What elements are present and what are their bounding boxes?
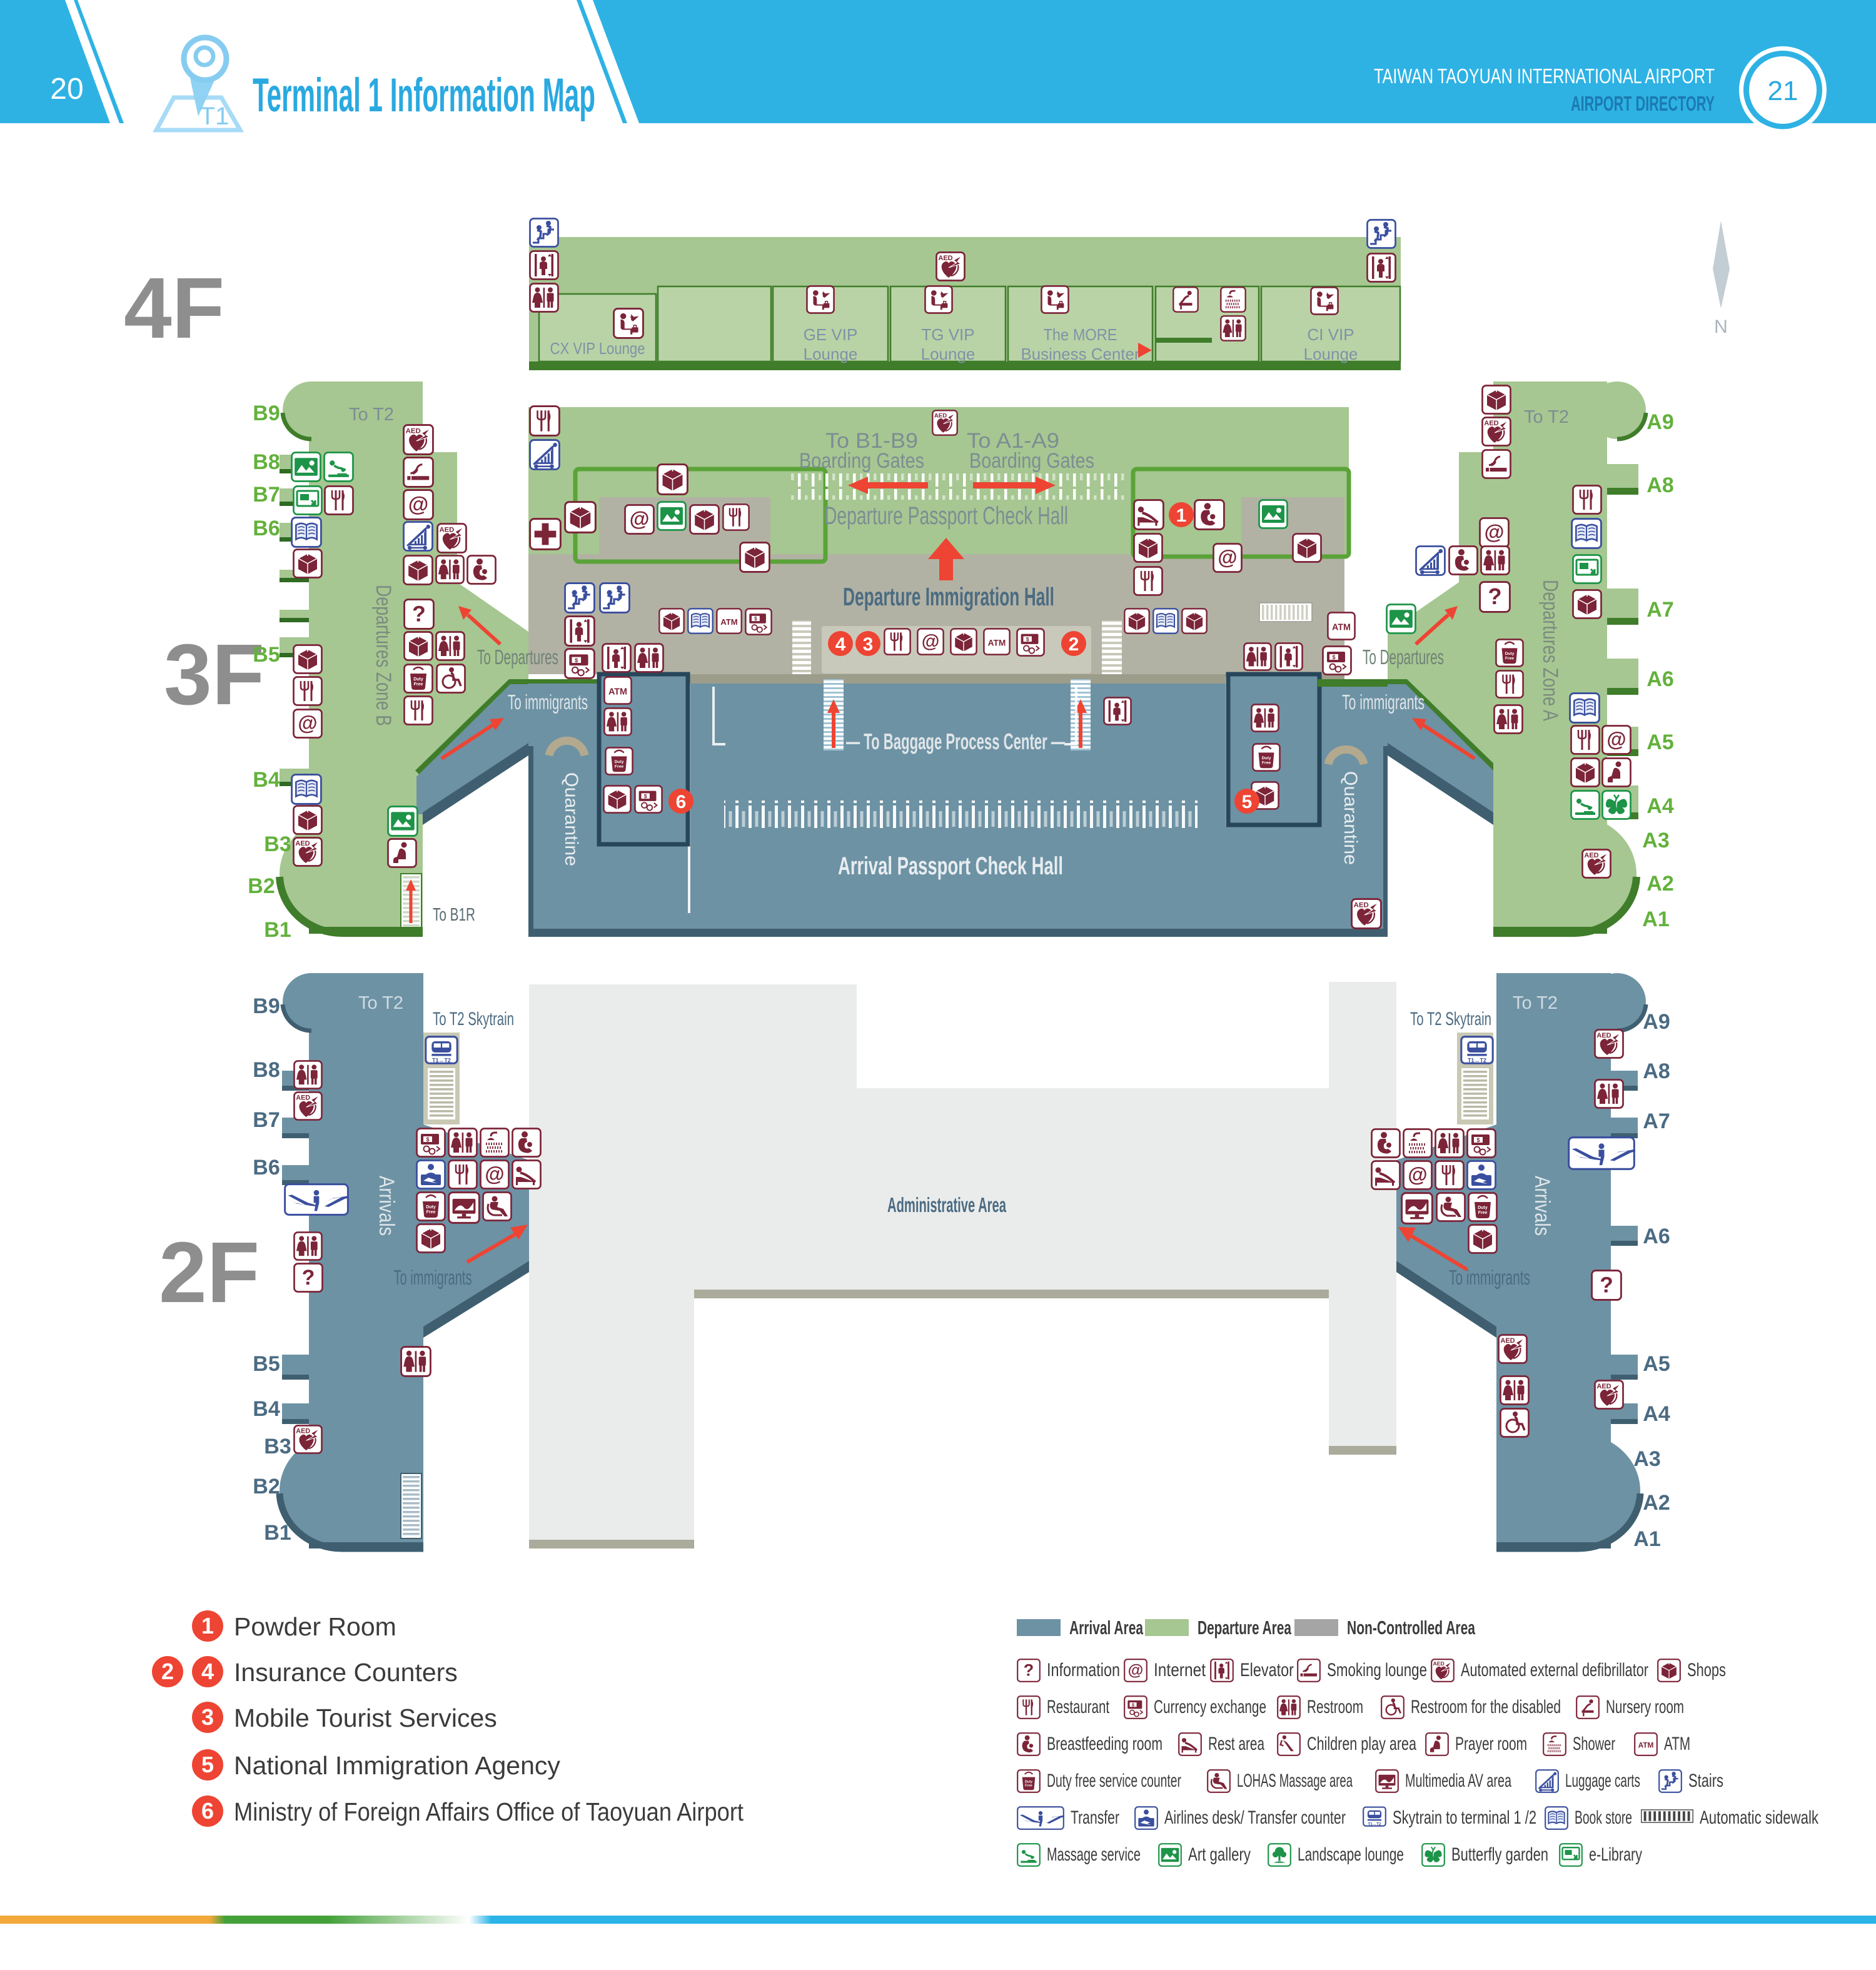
svg-text:Duty free service counter: Duty free service counter — [1047, 1770, 1181, 1791]
svg-text:6: 6 — [676, 792, 687, 812]
svg-text:3: 3 — [201, 1704, 214, 1730]
svg-text:Arrival Area: Arrival Area — [1069, 1617, 1144, 1639]
svg-text:To Departures: To Departures — [1363, 645, 1444, 669]
svg-text:Boarding Gates: Boarding Gates — [969, 449, 1094, 473]
svg-text:Children play area: Children play area — [1307, 1734, 1416, 1754]
svg-text:A1: A1 — [1642, 907, 1669, 931]
svg-text:Departure Immigration Hall: Departure Immigration Hall — [843, 582, 1054, 611]
svg-text:Elevator: Elevator — [1240, 1660, 1294, 1680]
svg-text:National Immigration Agency: National Immigration Agency — [234, 1751, 560, 1780]
svg-text:B6: B6 — [253, 1156, 280, 1179]
svg-text:20: 20 — [50, 73, 83, 106]
svg-text:B1: B1 — [264, 918, 291, 942]
svg-text:Departures Zone A: Departures Zone A — [1538, 580, 1562, 721]
svg-text:To Departures: To Departures — [477, 645, 558, 669]
svg-text:B3: B3 — [264, 1435, 291, 1458]
svg-text:N: N — [1714, 316, 1728, 337]
svg-text:Quarantine: Quarantine — [561, 772, 582, 866]
svg-text:Boarding Gates: Boarding Gates — [799, 449, 924, 473]
svg-text:A7: A7 — [1643, 1109, 1670, 1133]
svg-text:Restroom for the disabled: Restroom for the disabled — [1411, 1697, 1561, 1717]
svg-text:Powder Room: Powder Room — [234, 1612, 396, 1641]
svg-text:The MORE: The MORE — [1044, 325, 1117, 344]
svg-text:B5: B5 — [253, 643, 280, 667]
svg-text:A3: A3 — [1633, 1447, 1660, 1471]
svg-text:To T2 Skytrain: To T2 Skytrain — [433, 1009, 514, 1029]
svg-text:Prayer room: Prayer room — [1455, 1734, 1527, 1754]
svg-text:1: 1 — [1176, 505, 1187, 526]
svg-text:Book store: Book store — [1575, 1807, 1632, 1828]
svg-text:B9: B9 — [253, 994, 280, 1018]
svg-text:2: 2 — [161, 1659, 174, 1684]
svg-text:A5: A5 — [1647, 730, 1673, 754]
svg-text:Automatic sidewalk: Automatic sidewalk — [1700, 1807, 1819, 1828]
svg-text:A4: A4 — [1647, 794, 1674, 818]
svg-text:2: 2 — [1069, 634, 1079, 655]
svg-text:Skytrain to terminal 1 /2: Skytrain to terminal 1 /2 — [1393, 1807, 1536, 1828]
svg-text:T1: T1 — [200, 103, 229, 130]
svg-text:Information: Information — [1047, 1660, 1120, 1680]
svg-text:Luggage carts: Luggage carts — [1565, 1770, 1640, 1791]
svg-text:To T2: To T2 — [1513, 993, 1558, 1013]
svg-text:Art gallery: Art gallery — [1188, 1844, 1251, 1865]
svg-text:Massage service: Massage service — [1047, 1844, 1141, 1865]
svg-text:Transfer: Transfer — [1071, 1807, 1119, 1828]
svg-text:Shower: Shower — [1573, 1734, 1615, 1754]
svg-text:A8: A8 — [1643, 1059, 1670, 1083]
svg-text:Nursery room: Nursery room — [1606, 1697, 1684, 1717]
svg-text:Mobile Tourist Services: Mobile Tourist Services — [234, 1704, 497, 1732]
svg-text:A5: A5 — [1643, 1352, 1670, 1376]
svg-text:Terminal 1 Information Map: Terminal 1 Information Map — [253, 69, 595, 122]
svg-text:Stairs: Stairs — [1688, 1770, 1723, 1791]
svg-text:Ministry of Foreign Affairs Of: Ministry of Foreign Affairs Office of Ta… — [234, 1797, 744, 1826]
svg-text:LOHAS Massage area: LOHAS Massage area — [1237, 1770, 1353, 1791]
svg-text:Breastfeeding room: Breastfeeding room — [1047, 1734, 1162, 1754]
svg-text:Smoking lounge: Smoking lounge — [1327, 1660, 1427, 1680]
svg-text:TAIWAN TAOYUAN INTERNATIONAL A: TAIWAN TAOYUAN INTERNATIONAL AIRPORT — [1374, 64, 1715, 88]
svg-text:A4: A4 — [1643, 1402, 1670, 1426]
svg-text:B3: B3 — [264, 832, 291, 856]
svg-text:2F: 2F — [159, 1225, 260, 1321]
svg-text:B2: B2 — [248, 874, 275, 898]
svg-text:B1: B1 — [264, 1521, 291, 1545]
svg-text:Quarantine: Quarantine — [1340, 771, 1361, 865]
svg-text:To immigrants: To immigrants — [1449, 1266, 1530, 1289]
svg-text:3F: 3F — [164, 627, 265, 723]
svg-text:To T2: To T2 — [349, 405, 394, 425]
svg-text:B8: B8 — [253, 1058, 280, 1082]
svg-text:A1: A1 — [1633, 1527, 1660, 1551]
svg-text:A2: A2 — [1647, 872, 1673, 896]
svg-text:Lounge: Lounge — [804, 345, 858, 363]
svg-text:A7: A7 — [1647, 598, 1673, 622]
svg-text:B8: B8 — [253, 450, 280, 474]
svg-text:Airlines desk/ Transfer counte: Airlines desk/ Transfer counter — [1164, 1807, 1346, 1828]
svg-text:4: 4 — [201, 1659, 214, 1684]
svg-text:A3: A3 — [1642, 829, 1669, 852]
svg-text:21: 21 — [1768, 76, 1798, 106]
svg-text:3: 3 — [863, 634, 874, 655]
svg-text:AIRPORT DIRECTORY: AIRPORT DIRECTORY — [1571, 92, 1715, 115]
svg-text:To T2 Skytrain: To T2 Skytrain — [1410, 1009, 1491, 1029]
svg-text:B4: B4 — [253, 768, 280, 792]
svg-text:ATM: ATM — [1664, 1734, 1690, 1754]
svg-text:A2: A2 — [1643, 1491, 1670, 1515]
svg-text:4F: 4F — [124, 260, 224, 356]
svg-text:Internet: Internet — [1154, 1660, 1206, 1680]
svg-text:B5: B5 — [253, 1352, 280, 1376]
svg-text:Currency exchange: Currency exchange — [1154, 1697, 1266, 1717]
svg-text:Departures Zone B: Departures Zone B — [371, 585, 395, 726]
svg-text:Automated external defibrillat: Automated external defibrillator — [1461, 1660, 1648, 1680]
svg-text:Arrivals: Arrivals — [1530, 1176, 1554, 1236]
svg-text:6: 6 — [201, 1798, 214, 1824]
svg-text:Non-Controlled Area: Non-Controlled Area — [1347, 1617, 1476, 1639]
svg-text:A8: A8 — [1647, 473, 1673, 497]
svg-text:B7: B7 — [253, 483, 280, 507]
svg-text:5: 5 — [1242, 792, 1253, 812]
svg-text:Restroom: Restroom — [1307, 1697, 1363, 1717]
svg-text:Administrative Area: Administrative Area — [887, 1193, 1006, 1216]
svg-text:Shops: Shops — [1687, 1660, 1726, 1680]
svg-text:Butterfly garden: Butterfly garden — [1451, 1844, 1548, 1865]
svg-text:To T2: To T2 — [358, 993, 403, 1013]
svg-text:A9: A9 — [1647, 410, 1673, 434]
svg-text:Arrivals: Arrivals — [375, 1176, 398, 1236]
svg-text:To B1R: To B1R — [433, 905, 475, 925]
svg-text:Departure Area: Departure Area — [1198, 1617, 1292, 1639]
svg-text:B9: B9 — [253, 402, 280, 425]
svg-text:Landscape lounge: Landscape lounge — [1298, 1844, 1404, 1865]
svg-text:e-Library: e-Library — [1589, 1844, 1642, 1865]
svg-text:Business Center: Business Center — [1021, 345, 1140, 363]
svg-text:5: 5 — [201, 1752, 214, 1777]
svg-text:To immigrants: To immigrants — [394, 1266, 472, 1289]
svg-text:Arrival Passport Check Hall: Arrival Passport Check Hall — [838, 852, 1063, 880]
svg-text:TG VIP: TG VIP — [921, 325, 974, 344]
svg-text:To T2: To T2 — [1524, 407, 1569, 427]
svg-text:Departure Passport Check Hall: Departure Passport Check Hall — [824, 502, 1068, 530]
svg-text:B6: B6 — [253, 517, 280, 540]
svg-text:To immigrants: To immigrants — [1342, 690, 1425, 714]
svg-text:Lounge: Lounge — [1304, 345, 1358, 363]
svg-text:B7: B7 — [253, 1108, 280, 1132]
svg-text:Lounge: Lounge — [921, 345, 976, 363]
svg-text:Multimedia AV area: Multimedia AV area — [1405, 1770, 1511, 1791]
svg-text:B2: B2 — [253, 1475, 280, 1498]
svg-text:A9: A9 — [1643, 1010, 1670, 1034]
svg-text:1: 1 — [201, 1613, 214, 1639]
svg-text:GE VIP: GE VIP — [804, 325, 858, 344]
svg-text:Insurance Counters: Insurance Counters — [234, 1658, 458, 1687]
svg-text:CX VIP Lounge: CX VIP Lounge — [550, 339, 645, 358]
svg-text:A6: A6 — [1647, 667, 1673, 691]
svg-text:CI VIP: CI VIP — [1307, 325, 1354, 344]
svg-text:Restaurant: Restaurant — [1047, 1697, 1109, 1717]
svg-text:Rest area: Rest area — [1208, 1734, 1264, 1754]
svg-text:B4: B4 — [253, 1397, 280, 1421]
svg-text:— To Baggage Process Center —: — To Baggage Process Center — — [846, 729, 1065, 754]
svg-text:A6: A6 — [1643, 1225, 1670, 1248]
svg-text:To immigrants: To immigrants — [508, 690, 588, 714]
svg-text:4: 4 — [835, 634, 846, 655]
